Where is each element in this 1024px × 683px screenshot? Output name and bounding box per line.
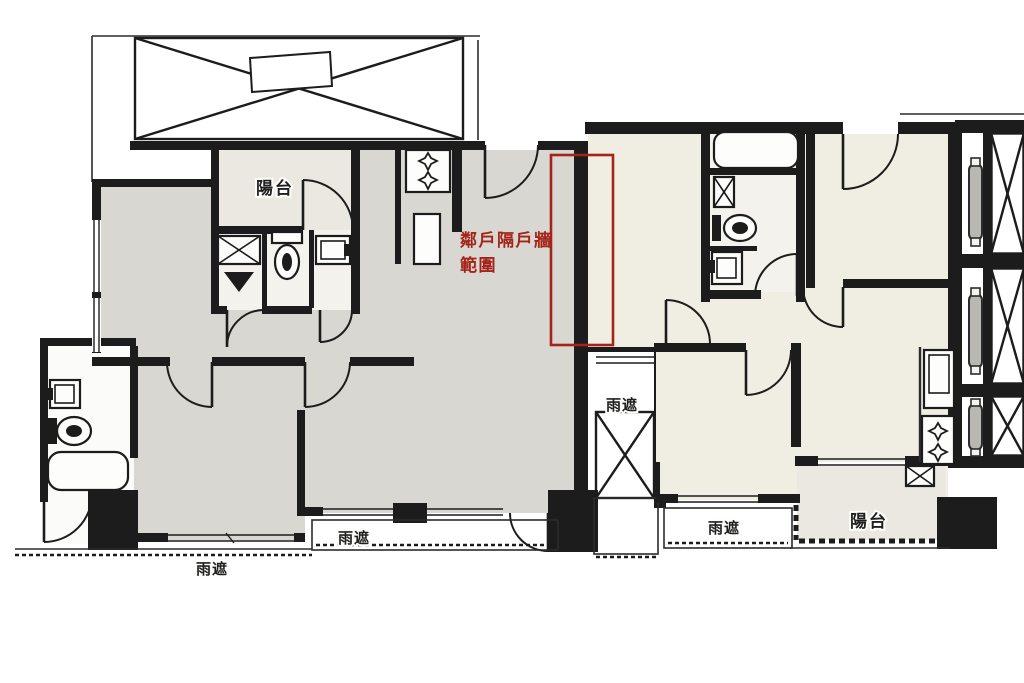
balcony-right-label: 陽台	[850, 511, 888, 532]
rain-shelter-se-label: 雨遮	[708, 519, 740, 537]
elevator-door-icon	[969, 404, 982, 450]
washbasin-icon	[708, 252, 742, 284]
kitchen-counter-icon	[924, 350, 954, 408]
rain-shelter-mid-label: 雨遮	[606, 396, 638, 414]
elevator-shaft	[969, 396, 1024, 456]
bathroom-toilet-icon	[48, 417, 91, 445]
annotation-text-line1: 鄰戶隔戶牆	[460, 230, 553, 251]
balcony-left-label: 陽台	[256, 178, 294, 199]
middle-shaft	[588, 343, 666, 557]
kitchen-counter-icon	[414, 214, 440, 264]
washbasin-icon	[316, 236, 351, 264]
elevator-shaft	[969, 133, 1024, 254]
rain-shelter-s-label: 雨遮	[338, 529, 370, 547]
party-wall	[574, 141, 588, 497]
structural-pillar	[937, 497, 997, 549]
closet-x-icon	[906, 466, 934, 486]
rain-shelter-sw-label: 雨遮	[196, 560, 228, 578]
stove-icon	[922, 416, 954, 464]
bathtub-icon	[714, 132, 798, 168]
closet-x-icon	[714, 177, 734, 207]
elevator-shaft	[969, 268, 1024, 384]
elevator-door-icon	[969, 164, 982, 240]
toilet-icon	[272, 232, 302, 279]
elevator-door-icon	[969, 294, 982, 368]
toilet-icon	[712, 215, 756, 241]
floor-plan-drawing: 陽台 陽台 雨遮 雨遮 雨遮 雨遮 鄰戶隔戶牆 範圍	[0, 0, 1024, 683]
bathtub-icon	[48, 452, 128, 490]
floor-plan-page: 陽台 陽台 雨遮 雨遮 雨遮 雨遮 鄰戶隔戶牆 範圍	[0, 0, 1024, 683]
bathroom-sink-icon	[46, 380, 80, 408]
void-inner-box	[250, 52, 332, 92]
stove-icon	[406, 150, 450, 192]
annotation-text-line2: 範圍	[460, 255, 497, 276]
structural-pillar	[548, 490, 598, 552]
